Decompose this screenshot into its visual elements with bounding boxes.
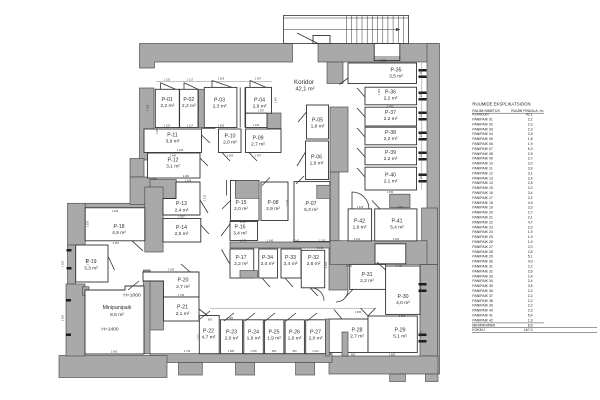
svg-text:PANIPAIK 35: PANIPAIK 35 — [472, 284, 493, 288]
svg-text:2,6: 2,6 — [528, 269, 533, 273]
svg-text:2,3 m²: 2,3 m² — [213, 103, 227, 109]
svg-text:1 567: 1 567 — [240, 220, 247, 224]
svg-text:1,9 m²: 1,9 m² — [247, 335, 261, 341]
svg-text:3,9: 3,9 — [528, 167, 533, 171]
svg-text:P-09: P-09 — [253, 136, 264, 142]
svg-text:P-23: P-23 — [226, 330, 237, 336]
svg-text:PANIPAIK 34: PANIPAIK 34 — [472, 279, 493, 283]
svg-text:167,0: 167,0 — [524, 328, 533, 332]
svg-text:2,4 m²: 2,4 m² — [284, 261, 298, 267]
svg-text:PANIPAIK 03: PANIPAIK 03 — [472, 127, 493, 131]
svg-text:4,9 m²: 4,9 m² — [112, 230, 126, 236]
svg-text:PANIPAIK 07: PANIPAIK 07 — [472, 147, 493, 151]
svg-text:PANIPAIK 26: PANIPAIK 26 — [472, 240, 493, 244]
svg-text:2,2: 2,2 — [528, 118, 533, 122]
svg-text:1 915: 1 915 — [357, 205, 364, 209]
svg-text:P-35: P-35 — [391, 68, 402, 74]
svg-text:2,3: 2,3 — [528, 309, 533, 313]
svg-text:P-40: P-40 — [385, 173, 396, 179]
svg-text:PANIPAIK 19: PANIPAIK 19 — [472, 206, 493, 210]
svg-text:1 300: 1 300 — [397, 205, 404, 209]
svg-text:1 163: 1 163 — [185, 178, 192, 182]
svg-text:5,1 m²: 5,1 m² — [393, 333, 407, 339]
svg-text:P-22: P-22 — [203, 329, 214, 335]
svg-text:1 435: 1 435 — [177, 148, 184, 152]
svg-text:1 014: 1 014 — [312, 349, 319, 353]
svg-text:1 650: 1 650 — [387, 190, 394, 194]
svg-text:2,2: 2,2 — [528, 304, 533, 308]
svg-text:PANIPAIK 12: PANIPAIK 12 — [472, 171, 493, 175]
svg-text:PANIPAIK 20: PANIPAIK 20 — [472, 211, 493, 215]
svg-text:PANIPAIK 06: PANIPAIK 06 — [472, 142, 493, 146]
svg-text:2 865: 2 865 — [389, 352, 396, 356]
svg-text:P-30: P-30 — [398, 294, 409, 300]
svg-text:4,0: 4,0 — [528, 260, 533, 264]
svg-text:PANIPAIK 22: PANIPAIK 22 — [472, 220, 493, 224]
svg-text:3,3: 3,3 — [528, 206, 533, 210]
svg-text:KOKKU: KOKKU — [472, 328, 485, 332]
svg-text:2,4: 2,4 — [528, 279, 533, 283]
svg-text:1 080: 1 080 — [228, 349, 235, 353]
svg-text:PANIPAIK 02: PANIPAIK 02 — [472, 122, 493, 126]
svg-text:950: 950 — [208, 317, 213, 321]
svg-text:PANIPAIK 04: PANIPAIK 04 — [472, 132, 493, 136]
svg-text:2,0 m²: 2,0 m² — [234, 206, 248, 212]
svg-text:2,4 m²: 2,4 m² — [175, 208, 189, 214]
svg-text:1 655: 1 655 — [418, 330, 422, 337]
svg-text:P-34: P-34 — [262, 255, 273, 261]
svg-text:4,9: 4,9 — [528, 201, 533, 205]
svg-text:H=1400: H=1400 — [101, 327, 119, 333]
svg-text:PANIPAIK 24: PANIPAIK 24 — [472, 230, 493, 234]
svg-text:1 957: 1 957 — [258, 109, 265, 113]
svg-text:2,8: 2,8 — [528, 250, 533, 254]
svg-text:42,1 m²: 42,1 m² — [296, 87, 315, 93]
svg-text:PANIPAIK 11: PANIPAIK 11 — [472, 167, 492, 171]
svg-text:PANIPAIK 16: PANIPAIK 16 — [472, 191, 493, 195]
svg-text:1 551: 1 551 — [197, 333, 201, 340]
svg-text:2,2: 2,2 — [528, 196, 533, 200]
svg-text:PANIPAIK 23: PANIPAIK 23 — [472, 225, 493, 229]
svg-text:1 951: 1 951 — [155, 127, 159, 134]
svg-text:2,2 m²: 2,2 m² — [182, 103, 196, 109]
svg-text:2,5 m²: 2,5 m² — [175, 231, 189, 237]
svg-text:2,0: 2,0 — [528, 225, 533, 229]
svg-text:4,7 m²: 4,7 m² — [202, 334, 216, 340]
svg-text:1 805: 1 805 — [218, 77, 225, 81]
svg-text:P-42: P-42 — [354, 219, 365, 225]
svg-text:2 180: 2 180 — [168, 268, 175, 272]
svg-text:3 057: 3 057 — [113, 241, 120, 245]
svg-text:3,1: 3,1 — [528, 171, 533, 175]
svg-text:P-04: P-04 — [254, 98, 265, 104]
svg-text:1,9 m²: 1,9 m² — [288, 335, 302, 341]
svg-text:5,1: 5,1 — [528, 255, 533, 259]
svg-text:1 860: 1 860 — [399, 314, 406, 318]
svg-text:2,4: 2,4 — [528, 176, 533, 180]
svg-text:4,7: 4,7 — [528, 220, 533, 224]
svg-text:2,7 m²: 2,7 m² — [176, 284, 190, 290]
svg-text:P-26: P-26 — [289, 330, 300, 336]
svg-text:2,2 m²: 2,2 m² — [360, 278, 374, 284]
svg-text:PANIPAIK 08: PANIPAIK 08 — [472, 152, 493, 156]
svg-text:2,0: 2,0 — [528, 245, 533, 249]
svg-text:2,3: 2,3 — [528, 122, 533, 126]
svg-text:P-39: P-39 — [385, 150, 396, 156]
svg-text:1 790: 1 790 — [178, 293, 185, 297]
svg-text:PANIPAIK 18: PANIPAIK 18 — [472, 201, 493, 205]
svg-text:1 120: 1 120 — [285, 199, 289, 206]
svg-text:4,0 m²: 4,0 m² — [396, 300, 410, 306]
svg-text:1,9: 1,9 — [528, 318, 533, 322]
svg-text:2 300: 2 300 — [393, 237, 400, 241]
svg-text:1 110: 1 110 — [354, 237, 361, 241]
svg-text:PANIPAIK 17: PANIPAIK 17 — [472, 196, 493, 200]
svg-text:2,7 m²: 2,7 m² — [350, 333, 364, 339]
svg-text:P-01: P-01 — [162, 97, 173, 103]
svg-text:1 060: 1 060 — [250, 349, 257, 353]
svg-text:1 830: 1 830 — [86, 220, 90, 227]
svg-text:2 455: 2 455 — [418, 284, 422, 291]
svg-text:KORIDOR: KORIDOR — [472, 113, 489, 117]
svg-text:P-37: P-37 — [385, 110, 396, 116]
svg-text:P-38: P-38 — [385, 130, 396, 136]
svg-text:1 140: 1 140 — [293, 238, 300, 242]
svg-text:PANIPAIK 31: PANIPAIK 31 — [472, 265, 493, 269]
svg-text:P-41: P-41 — [392, 219, 403, 225]
svg-text:2,0 m²: 2,0 m² — [309, 335, 323, 341]
svg-text:PANIPAIK 28: PANIPAIK 28 — [472, 250, 493, 254]
svg-text:2,2: 2,2 — [528, 289, 533, 293]
svg-text:2,1 m²: 2,1 m² — [384, 178, 398, 184]
svg-text:2,0: 2,0 — [528, 186, 533, 190]
svg-text:1 512: 1 512 — [202, 194, 206, 201]
svg-text:P-27: P-27 — [310, 330, 321, 336]
svg-text:1 000: 1 000 — [377, 88, 381, 95]
svg-text:P-12: P-12 — [168, 158, 179, 164]
svg-text:1,8 m²: 1,8 m² — [311, 123, 325, 129]
svg-text:PANIPAIK 37: PANIPAIK 37 — [472, 294, 493, 298]
svg-text:2,4 m²: 2,4 m² — [261, 261, 275, 267]
svg-text:2,4: 2,4 — [528, 274, 533, 278]
svg-text:2,2: 2,2 — [528, 299, 533, 303]
svg-text:2 640: 2 640 — [170, 154, 177, 158]
svg-text:1 220: 1 220 — [164, 78, 171, 82]
svg-text:5,3: 5,3 — [528, 147, 533, 151]
svg-text:P-21: P-21 — [177, 305, 188, 311]
svg-text:2 740: 2 740 — [184, 349, 191, 353]
svg-text:P-06: P-06 — [311, 155, 322, 161]
svg-text:950: 950 — [292, 349, 297, 353]
svg-text:2,2: 2,2 — [528, 294, 533, 298]
svg-text:P-14: P-14 — [176, 225, 187, 231]
svg-text:3,3 m²: 3,3 m² — [84, 266, 98, 272]
svg-text:P-29: P-29 — [395, 328, 406, 334]
svg-text:PANIPAIK 15: PANIPAIK 15 — [472, 186, 493, 190]
svg-text:1,9 m²: 1,9 m² — [353, 224, 367, 230]
svg-text:1 900: 1 900 — [111, 350, 118, 354]
svg-text:1 947: 1 947 — [274, 96, 278, 103]
svg-text:1 805: 1 805 — [218, 124, 225, 128]
svg-text:1 195: 1 195 — [319, 238, 326, 242]
svg-text:H=1000: H=1000 — [123, 293, 141, 299]
svg-text:1,9: 1,9 — [528, 142, 533, 146]
svg-text:PANIPAIK 42: PANIPAIK 42 — [472, 318, 493, 322]
svg-text:P-16: P-16 — [235, 225, 246, 231]
svg-text:2,9: 2,9 — [528, 132, 533, 136]
svg-text:P-32: P-32 — [308, 255, 319, 261]
svg-text:1 567: 1 567 — [178, 214, 185, 218]
svg-text:PANIPAIK 38: PANIPAIK 38 — [472, 299, 493, 303]
svg-text:2,7: 2,7 — [528, 211, 533, 215]
svg-text:1 984: 1 984 — [355, 310, 362, 314]
svg-text:3,9 m²: 3,9 m² — [166, 138, 180, 144]
svg-text:PANIPAIK 32: PANIPAIK 32 — [472, 269, 493, 273]
svg-text:2,6 m²: 2,6 m² — [307, 261, 321, 267]
svg-text:2,0 m²: 2,0 m² — [223, 139, 237, 145]
svg-text:8,6: 8,6 — [528, 323, 533, 327]
svg-text:1 220: 1 220 — [164, 124, 171, 128]
svg-text:P-13: P-13 — [176, 201, 187, 207]
svg-text:PANIPAIK 10: PANIPAIK 10 — [472, 162, 493, 166]
svg-text:1 303: 1 303 — [85, 258, 89, 265]
svg-text:1,9 m²: 1,9 m² — [310, 160, 324, 166]
svg-text:3,5 m²: 3,5 m² — [389, 73, 403, 79]
svg-text:1 367: 1 367 — [255, 154, 262, 158]
svg-text:1 957: 1 957 — [255, 77, 262, 81]
svg-text:P-25: P-25 — [269, 330, 280, 336]
svg-text:1,8: 1,8 — [528, 137, 533, 141]
svg-text:1 369: 1 369 — [227, 154, 234, 158]
svg-text:2,2: 2,2 — [528, 265, 533, 269]
svg-text:P-28: P-28 — [352, 328, 363, 334]
svg-text:2,2 m²: 2,2 m² — [384, 136, 398, 142]
svg-text:2,2 m²: 2,2 m² — [384, 156, 398, 162]
svg-text:P-08: P-08 — [268, 200, 279, 206]
svg-text:1 801: 1 801 — [346, 264, 353, 268]
svg-text:P-10: P-10 — [225, 134, 236, 140]
svg-text:P-02: P-02 — [183, 97, 194, 103]
svg-text:2,2 m²: 2,2 m² — [384, 116, 398, 122]
svg-text:3,1 m²: 3,1 m² — [166, 163, 180, 169]
svg-text:3,4 m²: 3,4 m² — [233, 230, 247, 236]
svg-text:P-15: P-15 — [236, 200, 247, 206]
svg-text:8,6 m²: 8,6 m² — [110, 312, 124, 318]
svg-text:2,5: 2,5 — [528, 181, 533, 185]
svg-text:5,3 m²: 5,3 m² — [304, 207, 318, 213]
svg-text:PANIPAIK 09: PANIPAIK 09 — [472, 157, 493, 161]
svg-text:PANIPAIK 29: PANIPAIK 29 — [472, 255, 493, 259]
svg-text:PANIPAIK 41: PANIPAIK 41 — [472, 314, 493, 318]
svg-text:PANIPAIK 30: PANIPAIK 30 — [472, 260, 493, 264]
svg-text:2,9 m²: 2,9 m² — [266, 206, 280, 212]
svg-text:P-31: P-31 — [362, 272, 373, 278]
svg-text:1 920: 1 920 — [112, 209, 119, 213]
svg-text:1 117: 1 117 — [187, 78, 194, 82]
svg-text:PANIPAIK 14: PANIPAIK 14 — [472, 181, 493, 185]
svg-text:1 117: 1 117 — [187, 124, 194, 128]
svg-text:P-07: P-07 — [306, 201, 317, 207]
svg-text:1,9: 1,9 — [528, 230, 533, 234]
svg-text:2,7 m²: 2,7 m² — [251, 141, 265, 147]
svg-text:2 300: 2 300 — [380, 59, 387, 63]
svg-text:1 080: 1 080 — [227, 316, 234, 320]
svg-text:2 200: 2 200 — [387, 104, 394, 108]
svg-text:PANIPAIK 33: PANIPAIK 33 — [472, 274, 493, 278]
svg-text:2,2 m²: 2,2 m² — [234, 261, 248, 267]
svg-text:RUUMIDE EKSPLIKATSIOON: RUUMIDE EKSPLIKATSIOON — [472, 101, 530, 106]
svg-text:2,3: 2,3 — [528, 127, 533, 131]
svg-text:42,1: 42,1 — [526, 113, 533, 117]
svg-text:1 075: 1 075 — [240, 238, 247, 242]
svg-text:2,2 m²: 2,2 m² — [160, 103, 174, 109]
svg-text:2,0 m²: 2,0 m² — [225, 335, 239, 341]
svg-text:2,1 m²: 2,1 m² — [176, 311, 190, 317]
svg-text:P-17: P-17 — [236, 255, 247, 261]
svg-text:PANIPAIK 25: PANIPAIK 25 — [472, 235, 493, 239]
svg-text:Minipanipaik: Minipanipaik — [103, 305, 132, 311]
svg-text:P-20: P-20 — [178, 278, 189, 284]
svg-text:P-05: P-05 — [312, 118, 323, 124]
svg-text:P-36: P-36 — [385, 90, 396, 96]
svg-text:950: 950 — [272, 349, 277, 353]
svg-text:2,2 m²: 2,2 m² — [384, 95, 398, 101]
svg-text:PANIPAIK 40: PANIPAIK 40 — [472, 309, 493, 313]
svg-text:3,4: 3,4 — [528, 191, 533, 195]
svg-text:1 140: 1 140 — [267, 238, 274, 242]
svg-text:2,1: 2,1 — [528, 216, 533, 220]
svg-text:P-18: P-18 — [114, 224, 125, 230]
svg-text:2,9 m²: 2,9 m² — [253, 103, 267, 109]
svg-text:1 430: 1 430 — [396, 264, 403, 268]
svg-text:PANIPAIK 21: PANIPAIK 21 — [472, 216, 493, 220]
svg-text:P-11: P-11 — [167, 133, 178, 139]
svg-text:1 303: 1 303 — [61, 260, 65, 267]
svg-text:MINIPANIPAIK: MINIPANIPAIK — [472, 323, 496, 327]
svg-text:1,9: 1,9 — [528, 240, 533, 244]
svg-text:PANIPAIK 27: PANIPAIK 27 — [472, 245, 493, 249]
svg-text:5,4: 5,4 — [528, 314, 533, 318]
svg-text:1,9: 1,9 — [528, 235, 533, 239]
svg-text:2 482: 2 482 — [183, 174, 190, 178]
svg-text:1 303: 1 303 — [146, 104, 150, 111]
svg-text:P-24: P-24 — [248, 330, 259, 336]
svg-text:PANIPAIK 39: PANIPAIK 39 — [472, 304, 493, 308]
svg-text:PANIPAIK 36: PANIPAIK 36 — [472, 289, 493, 293]
svg-text:3,5: 3,5 — [528, 284, 533, 288]
svg-text:2 303: 2 303 — [324, 261, 328, 268]
svg-text:2,7: 2,7 — [528, 157, 533, 161]
svg-text:1 220: 1 220 — [253, 123, 260, 127]
svg-text:P-03: P-03 — [214, 98, 225, 104]
svg-text:5,4 m²: 5,4 m² — [390, 224, 404, 230]
svg-text:3 130: 3 130 — [317, 246, 324, 250]
svg-text:Koridor: Koridor — [294, 79, 314, 86]
svg-text:P-33: P-33 — [285, 255, 296, 261]
svg-text:PANIPAIK 13: PANIPAIK 13 — [472, 176, 493, 180]
svg-text:PANIPAIK 01: PANIPAIK 01 — [472, 118, 493, 122]
svg-text:950: 950 — [351, 352, 356, 356]
svg-text:2,9: 2,9 — [528, 152, 533, 156]
svg-text:1 505: 1 505 — [61, 314, 65, 321]
svg-text:1,9 m²: 1,9 m² — [267, 335, 281, 341]
svg-text:PANIPAIK 05: PANIPAIK 05 — [472, 137, 493, 141]
svg-text:2,0: 2,0 — [528, 162, 533, 166]
